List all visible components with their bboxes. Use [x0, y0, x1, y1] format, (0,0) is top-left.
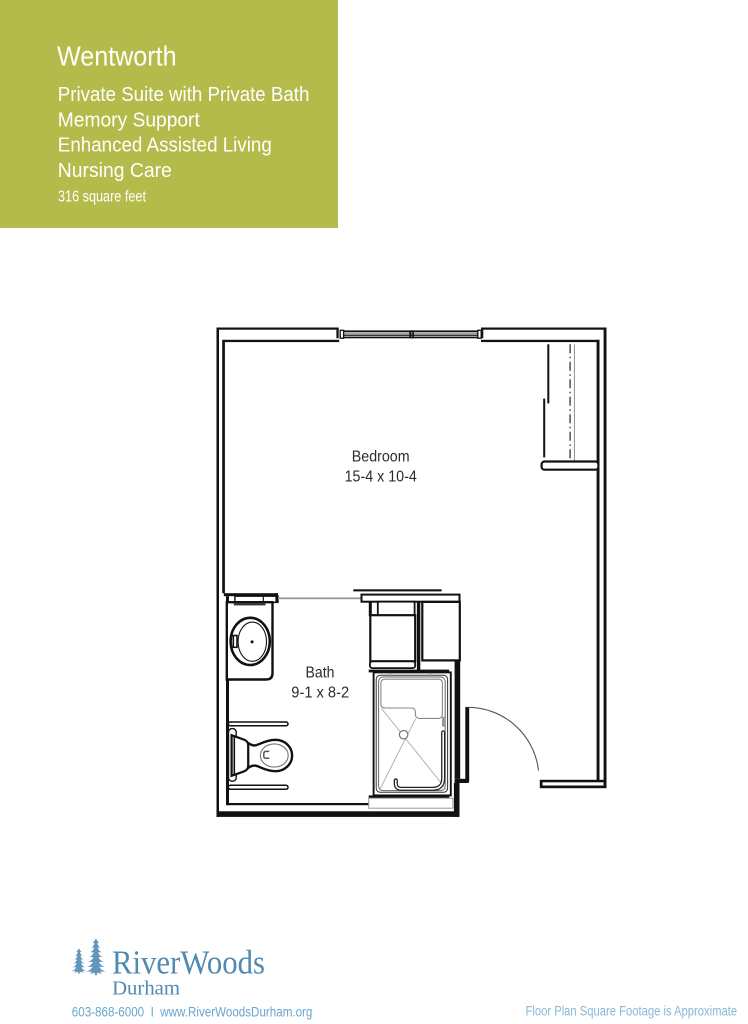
svg-text:RiverWoods: RiverWoods [112, 944, 265, 981]
svg-text:9-1 x 8-2: 9-1 x 8-2 [291, 685, 349, 702]
svg-text:603-868-6000 I www.RiverWood: 603-868-6000 I www.RiverWoodsDurham.org [72, 1004, 313, 1019]
svg-text:Wentworth: Wentworth [57, 40, 177, 71]
svg-text:316 square feet: 316 square feet [58, 189, 147, 206]
svg-text:Private Suite with Private Bat: Private Suite with Private Bath [58, 83, 310, 106]
svg-text:15-4 x 10-4: 15-4 x 10-4 [345, 469, 417, 486]
svg-text:Floor Plan Square Footage is A: Floor Plan Square Footage is Approximate [526, 1004, 738, 1019]
svg-text:Bedroom: Bedroom [352, 448, 410, 465]
svg-text:Enhanced Assisted Living: Enhanced Assisted Living [58, 134, 272, 157]
svg-text:Bath: Bath [306, 665, 335, 682]
svg-text:Durham: Durham [112, 977, 180, 999]
svg-text:Memory Support: Memory Support [58, 108, 200, 131]
svg-text:Nursing Care: Nursing Care [58, 159, 172, 182]
